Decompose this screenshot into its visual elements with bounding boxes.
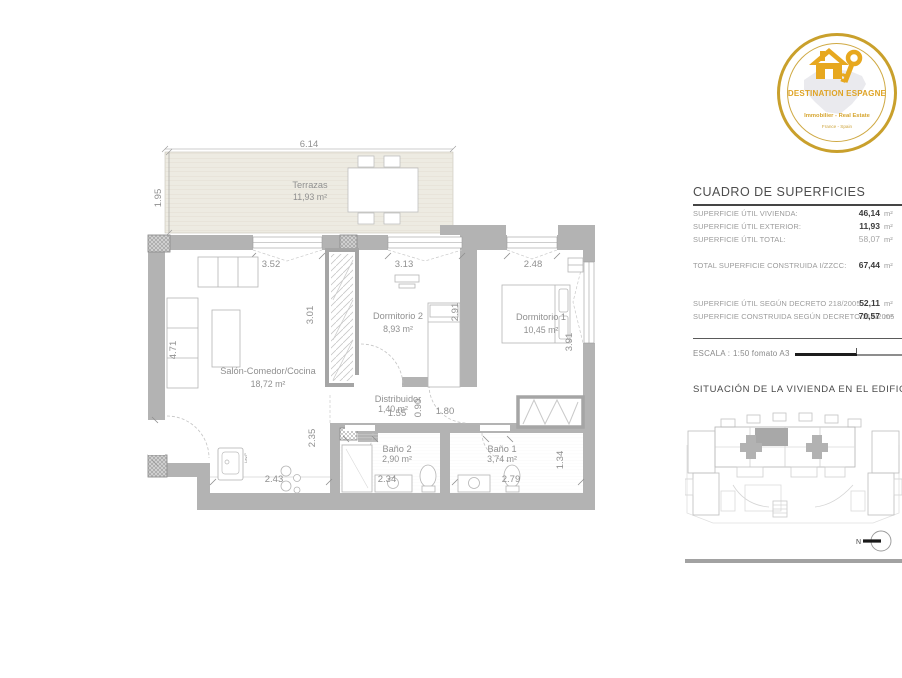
row-unit: m² bbox=[884, 261, 893, 270]
table-row: TOTAL SUPERFICIE CONSTRUIDA I/ZZCC: 67,4… bbox=[693, 261, 902, 272]
dim-wardrobe-h: 1.34 bbox=[555, 451, 566, 470]
room-label-bano1: Baño 1 bbox=[487, 444, 516, 454]
room-area-dorm2: 8,93 m² bbox=[383, 324, 413, 334]
room-label-salon: Salón-Comedor/Cocina bbox=[220, 366, 316, 376]
dim-dorm2-w: 3.13 bbox=[395, 259, 414, 270]
table-row: SUPERFICIE ÚTIL TOTAL: 58,07 m² bbox=[693, 235, 902, 246]
dim-salon-h-mid: 3.01 bbox=[305, 306, 316, 325]
row-value: 46,14 bbox=[859, 208, 880, 218]
row-label: SUPERFICIE ÚTIL TOTAL: bbox=[693, 235, 786, 244]
drawing-sheet: DESTINATION ESPAGNE Immobilier - Real Es… bbox=[0, 0, 902, 678]
dim-terrace-h: 1.95 bbox=[153, 189, 164, 208]
table-row: SUPERFICIE ÚTIL VIVIENDA: 46,14 m² bbox=[693, 209, 902, 220]
dim-salon-w: 3.52 bbox=[262, 259, 281, 270]
row-unit: m² bbox=[884, 312, 893, 321]
dim-dorm1-w: 2.48 bbox=[524, 259, 543, 270]
scale-bar-black bbox=[795, 353, 857, 356]
floor-plan: Lav.P Terrazas 11,93 m² bbox=[140, 140, 600, 510]
building-situation-plan: N bbox=[685, 405, 902, 565]
dim-hall-w2: 1.55 bbox=[388, 408, 407, 419]
room-label-terraza: Terrazas bbox=[292, 180, 328, 190]
dim-hall-h: 0.90 bbox=[413, 399, 424, 418]
row-label: SUPERFICIE ÚTIL EXTERIOR: bbox=[693, 222, 801, 231]
surfaces-title: CUADRO DE SUPERFICIES bbox=[693, 185, 865, 199]
row-unit: m² bbox=[884, 235, 893, 244]
row-unit: m² bbox=[884, 299, 893, 308]
dim-terrace-w: 6.14 bbox=[300, 140, 319, 150]
row-value: 58,07 bbox=[859, 234, 880, 244]
room-area-terraza: 11,93 m² bbox=[293, 192, 327, 202]
wardrobe-dorm1 bbox=[518, 397, 583, 427]
dim-hall-w: 1.80 bbox=[436, 406, 455, 417]
stove-burners bbox=[281, 466, 301, 493]
dim-kitchen-h: 2.35 bbox=[307, 429, 318, 448]
dim-kitchen-w: 2.43 bbox=[265, 474, 284, 485]
row-value: 70,57 bbox=[859, 311, 880, 321]
room-area-bano2: 2,90 m² bbox=[382, 454, 412, 464]
logo-tagline: France - Spain bbox=[772, 124, 902, 129]
shaft-wardrobe bbox=[327, 250, 357, 385]
kitchen: Lav.P bbox=[210, 448, 330, 493]
row-unit: m² bbox=[884, 222, 893, 231]
room-area-salon: 18,72 m² bbox=[251, 379, 286, 389]
row-unit: m² bbox=[884, 209, 893, 218]
scale-bar-gray bbox=[857, 354, 902, 356]
row-value: 52,11 bbox=[859, 298, 880, 308]
table-row: SUPERFICIE CONSTRUIDA SEGÚN DECRETO 218/… bbox=[693, 312, 902, 323]
room-area-bano1: 3,74 m² bbox=[487, 454, 517, 464]
title-rule bbox=[693, 204, 902, 206]
situation-title: SITUACIÓN DE LA VIVIENDA EN EL EDIFICIO bbox=[693, 384, 902, 395]
dim-bano1-w: 2.79 bbox=[502, 474, 521, 485]
dim-bano2-w: 2.34 bbox=[378, 474, 397, 485]
scale-value: 1:50 fomato A3 bbox=[733, 349, 790, 358]
dim-dorm2-h: 2.91 bbox=[450, 303, 461, 322]
row-label: SUPERFICIE ÚTIL SEGÚN DECRETO 218/2005 bbox=[693, 299, 861, 308]
room-label-dorm1: Dormitorio 1 bbox=[516, 312, 566, 322]
scale-label: ESCALA : bbox=[693, 349, 730, 358]
room-label-dorm2: Dormitorio 2 bbox=[373, 311, 423, 321]
room-area-dorm1: 10,45 m² bbox=[524, 325, 559, 335]
dim-dorm1-h: 3.91 bbox=[564, 333, 575, 352]
bottom-rule bbox=[685, 559, 902, 563]
north-label: N bbox=[856, 539, 861, 546]
row-value: 67,44 bbox=[859, 260, 880, 270]
dim-salon-h-left: 4.71 bbox=[168, 341, 179, 360]
logo-title: DESTINATION ESPAGNE bbox=[772, 89, 902, 98]
row-label: SUPERFICIE ÚTIL VIVIENDA: bbox=[693, 209, 798, 218]
row-value: 11,93 bbox=[859, 221, 880, 231]
logo-subtitle: Immobilier - Real Estate bbox=[772, 113, 902, 119]
logo: DESTINATION ESPAGNE Immobilier - Real Es… bbox=[772, 28, 902, 158]
north-indicator: N bbox=[856, 531, 891, 551]
table-row: SUPERFICIE ÚTIL EXTERIOR: 11,93 m² bbox=[693, 222, 902, 233]
room-label-bano2: Baño 2 bbox=[382, 444, 411, 454]
table-row: SUPERFICIE ÚTIL SEGÚN DECRETO 218/2005 5… bbox=[693, 299, 902, 310]
row-label: TOTAL SUPERFICIE CONSTRUIDA I/ZZCC: bbox=[693, 261, 846, 270]
divider-rule bbox=[693, 338, 902, 339]
appliance-label: Lav.P bbox=[243, 453, 248, 463]
